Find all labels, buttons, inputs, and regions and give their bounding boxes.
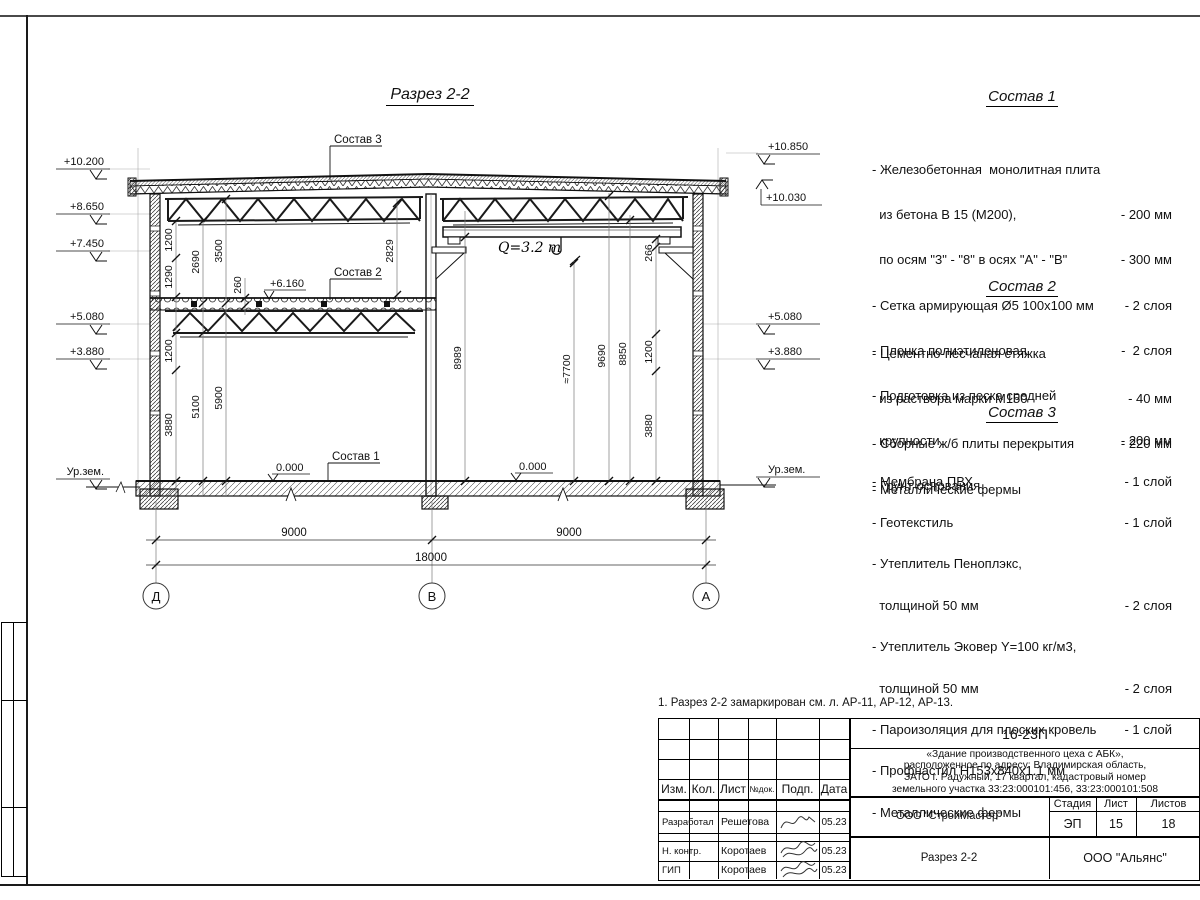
role-developer: Разработал — [662, 811, 717, 833]
name-ncontrol: Коротаев — [721, 841, 775, 861]
svg-text:260: 260 — [232, 276, 244, 294]
ground-slab — [86, 481, 776, 509]
svg-text:2829: 2829 — [384, 239, 396, 263]
spec-row: - Утеплитель Эковер Y=100 кг/м3, — [872, 640, 1172, 654]
roof-end-cap-left — [128, 178, 136, 196]
spec-row: толщиной 50 мм- 2 слоя — [872, 682, 1172, 696]
svg-text:1200: 1200 — [643, 340, 655, 364]
drawing-sheet: { "drawing": { "title": "Разрез 2-2", "l… — [0, 0, 1200, 900]
spec-title-3: Состав 3 — [872, 404, 1172, 421]
doc-title: Разрез 2-2 — [849, 836, 1049, 879]
ground-level-label-right: Ур.зем. — [768, 464, 805, 476]
svg-text:9000: 9000 — [556, 527, 582, 539]
bracket-right — [659, 247, 693, 253]
design-org: ООО "СтройМастер" — [849, 796, 1049, 836]
sheet-border-top — [0, 15, 1200, 17]
spec-row: по осям "3" - "8" в осях "А" - "В"- 300 … — [872, 252, 1172, 267]
spec-row: - Утеплитель Пеноплэкс, — [872, 557, 1172, 571]
spec-row: - Мембрана ПВХ- 1 слой — [872, 475, 1172, 489]
customer-org: ООО "Альянс" — [1049, 836, 1200, 879]
svg-text:3880: 3880 — [643, 414, 655, 438]
svg-text:5900: 5900 — [213, 386, 225, 410]
svg-text:+5.080: +5.080 — [768, 311, 802, 323]
col-podp: Подп. — [776, 779, 819, 799]
foundation-middle — [422, 496, 448, 509]
project-code: 16-23П — [849, 719, 1200, 748]
svg-text:+7.450: +7.450 — [70, 238, 104, 250]
date-gip: 05.23 — [819, 861, 849, 879]
axis-bubbles: Д В А — [143, 583, 719, 609]
roof-end-cap-right — [720, 178, 728, 196]
svg-text:+3.880: +3.880 — [70, 346, 104, 358]
sheets-value: 18 — [1136, 811, 1200, 836]
roof-truss-right — [440, 197, 688, 225]
sheet-value: 15 — [1096, 811, 1136, 836]
elev-6160-label: +6.160 — [270, 278, 304, 290]
date-ncontrol: 05.23 — [819, 841, 849, 861]
sostav1-label: Состав 1 — [332, 451, 380, 463]
col-izm: Изм. — [659, 779, 689, 799]
elevation-marks-right: +10.850 +10.030 +5.080 +3.880 Ур.зем. — [756, 141, 822, 487]
intermediate-slab — [150, 298, 436, 310]
svg-text:+5.080: +5.080 — [70, 311, 104, 323]
col-ndoc: №док. — [748, 779, 776, 799]
name-gip: Коротаев — [721, 861, 775, 879]
crane-capacity-label: Q=3.2 т — [498, 240, 561, 256]
name-developer: Решетова — [721, 811, 775, 833]
spec-row: - Геотекстиль- 1 слой — [872, 516, 1172, 530]
roof — [128, 174, 728, 196]
sostav3-label: Состав 3 — [334, 134, 382, 146]
bracket-left — [432, 247, 466, 253]
svg-text:+3.880: +3.880 — [768, 346, 802, 358]
ground-level-label-left: Ур.зем. — [67, 466, 104, 478]
sostav2-label: Состав 2 — [334, 267, 382, 279]
spec-title-2: Состав 2 — [872, 278, 1172, 295]
svg-text:9000: 9000 — [281, 527, 307, 539]
spec-row: из бетона В 15 (М200),- 200 мм — [872, 207, 1172, 222]
zero-level-left: 0.000 — [276, 462, 304, 474]
svg-text:1200: 1200 — [163, 339, 175, 363]
dimension-chain-lines — [176, 193, 656, 496]
spec-row: - Цементно-песчаная стяжка — [872, 346, 1172, 361]
svg-text:8989: 8989 — [452, 346, 464, 370]
svg-text:+10.200: +10.200 — [64, 156, 104, 168]
axis-label-a: А — [702, 589, 711, 604]
svg-text:≈7700: ≈7700 — [561, 354, 573, 383]
svg-text:3500: 3500 — [213, 239, 225, 263]
spec-title-1: Состав 1 — [872, 88, 1172, 105]
date-developer: 05.23 — [819, 811, 849, 833]
project-description: «Здание производственного цеха с АБК», р… — [849, 748, 1200, 796]
elevation-marks-left: +10.200 +8.650 +7.450 +5.080 +3.880 Ур.з… — [56, 156, 110, 489]
col-data: Дата — [819, 779, 849, 799]
sheets-label: Листов — [1136, 796, 1200, 811]
stage-label: Стадия — [1049, 796, 1096, 811]
svg-text:+10.030: +10.030 — [766, 192, 806, 204]
role-ncontrol: Н. контр. — [662, 841, 717, 861]
svg-text:+10.850: +10.850 — [768, 141, 808, 153]
signature — [779, 812, 817, 834]
zero-level-right: 0.000 — [519, 461, 547, 473]
foundation-right — [686, 489, 724, 509]
axis-label-v: В — [428, 589, 437, 604]
foundation-left — [140, 489, 178, 509]
sheet-note: 1. Разрез 2-2 замаркирован см. л. АР-11,… — [658, 697, 1178, 709]
svg-text:1200: 1200 — [163, 228, 175, 252]
svg-text:1290: 1290 — [163, 265, 175, 289]
spec-row: - Железобетонная монолитная плита — [872, 162, 1172, 177]
title-block: Изм. Кол. Лист №док. Подп. Дата Разработ… — [658, 718, 1200, 881]
svg-text:9690: 9690 — [596, 344, 608, 368]
svg-text:18000: 18000 — [415, 552, 447, 564]
signature — [777, 839, 819, 881]
spec-row: толщиной 50 мм- 2 слоя — [872, 599, 1172, 613]
svg-text:8850: 8850 — [617, 342, 629, 366]
role-gip: ГИП — [662, 861, 717, 879]
sheet-label: Лист — [1096, 796, 1136, 811]
svg-text:3880: 3880 — [163, 413, 175, 437]
sheet-border-bottom — [0, 884, 1200, 886]
svg-text:2690: 2690 — [190, 250, 202, 274]
stage-value: ЭП — [1049, 811, 1096, 836]
col-kol: Кол. — [689, 779, 718, 799]
col-list: Лист — [718, 779, 748, 799]
svg-text:+8.650: +8.650 — [70, 201, 104, 213]
section-drawing: Q=3.2 т +10.200 +8.650 +7.450 +5.080 +3.… — [28, 53, 828, 613]
svg-text:5100: 5100 — [190, 395, 202, 419]
svg-text:266: 266 — [643, 244, 655, 262]
bottom-dimensions: 9000 9000 18000 — [146, 501, 716, 583]
axis-label-d: Д — [152, 589, 161, 604]
